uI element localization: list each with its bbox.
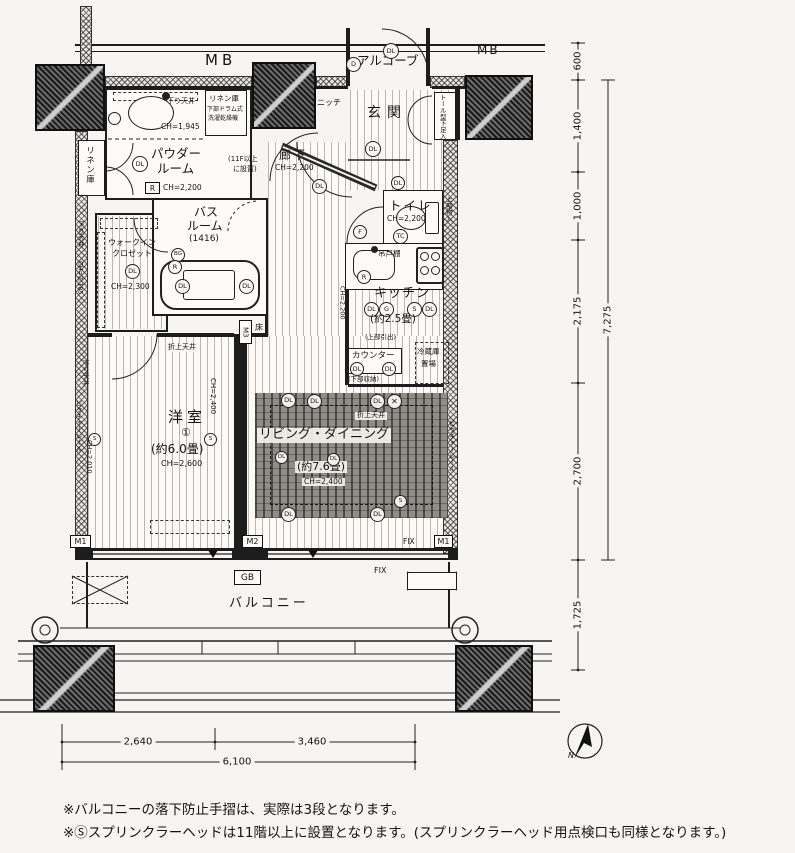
r-symbol-kitchen: R <box>357 270 371 284</box>
gb-box: GB <box>234 570 261 585</box>
fridge-label-1: 冷蔵庫 <box>417 348 440 356</box>
dim-1000: 1,000 <box>573 190 584 223</box>
m3-door-box: M3 <box>239 320 252 344</box>
western-door-arc <box>112 334 157 379</box>
wic-shelf-dashed <box>97 232 105 328</box>
downlight-symbol-wic: DL <box>125 264 140 279</box>
dim-6100-total: 6,100 <box>220 757 255 768</box>
stove-burner-1 <box>420 252 429 261</box>
downlight-symbol-ld-1: DL <box>281 393 296 408</box>
dim-3460: 3,460 <box>295 737 330 748</box>
linen-left-label: リネン庫 <box>84 146 94 194</box>
wic-label-2: クロゼット <box>112 250 152 259</box>
dim-2640: 2,640 <box>121 737 156 748</box>
toilet-ch-label: CH=2,200 <box>387 215 426 223</box>
stove-burner-2 <box>431 252 440 261</box>
sliding-window-mark-1 <box>208 550 218 558</box>
rail-post-right <box>452 617 478 643</box>
sprinkler-note-box-2: に設置) <box>233 166 257 174</box>
bath-door-arc <box>228 201 258 231</box>
dim-1400: 1,400 <box>573 110 584 143</box>
western-room-label: 洋室 <box>168 409 206 426</box>
powder-drop-ceiling-label: 下り天井 <box>167 98 197 106</box>
window-m2-box: M2 <box>242 535 263 548</box>
compass-north-label: N <box>568 752 574 761</box>
powder-fixture <box>108 112 121 125</box>
niche-label: ニッチ <box>317 99 341 108</box>
delivery-box-symbol: D <box>346 57 361 72</box>
pillar-top-right <box>465 75 533 140</box>
compass-needle <box>574 724 592 759</box>
rail-post-left <box>32 617 58 643</box>
linen-top-label-1: リネン庫 <box>209 95 239 103</box>
downlight-symbol-counter-2: DL <box>382 362 396 376</box>
lower-storage-label: (下部収納) <box>348 376 379 383</box>
dim-2700: 2,700 <box>573 455 584 488</box>
downlight-symbol-bath-1: DL <box>175 279 190 294</box>
dim-600: 600 <box>573 49 584 72</box>
note-balcony-rail: ※バルコニーの落下防止手摺は、実際は3段となります。 <box>63 798 405 818</box>
downlight-symbol-powder: DL <box>132 156 148 172</box>
balcony-label: バルコニー <box>229 597 309 612</box>
fridge-label-2: 置場 <box>421 360 436 368</box>
bath-label-2: ルーム <box>187 220 223 233</box>
balcony-box <box>407 572 457 590</box>
linen-top-label-2: 下部ドラム式 <box>207 107 243 114</box>
note-sprinkler: ※Ⓢスプリンクラーヘッドは11階以上に設置となります。(スプリンクラーヘッド用点… <box>63 821 726 841</box>
rail-post-left-inner <box>40 625 50 635</box>
downlight-symbol-ld-6: DL <box>275 451 288 464</box>
pillar-top-left <box>35 64 105 131</box>
downlight-symbol-ld-2: DL <box>307 394 322 409</box>
bath-size-label: (1416) <box>189 234 219 244</box>
picture-rail-label-right: ピクチャーレール <box>447 420 454 492</box>
picture-rail-label-left: ピクチャーレール <box>74 400 81 472</box>
rail-post-right-inner <box>460 625 470 635</box>
downlight-symbol-alcove: DL <box>383 43 399 59</box>
genkan-label: 玄関 <box>367 106 407 122</box>
western-coffered-label: 折上天井 <box>166 344 198 352</box>
wic-drop-ceiling-label: 下り天井 <box>76 221 83 259</box>
window-m1-left-box: M1 <box>70 535 91 548</box>
plan-linework <box>0 0 795 853</box>
floor-plan-sheet: MB MB アルコーブ D DL 玄関 ニッチ トール型下足入 DL 廊下 CH… <box>0 0 795 853</box>
counter-label: カウンター <box>352 352 395 362</box>
sprinkler-symbol-western-2: S <box>204 433 217 446</box>
r-box-powder: R <box>145 182 160 194</box>
window-fix-label: FIX <box>403 538 415 546</box>
western-drop-ceiling-label: 下り天井 <box>81 360 88 398</box>
bath-label-1: バス <box>194 206 218 219</box>
ld-label: リビング・ダイニング <box>257 428 391 443</box>
x-symbol-ld: ✕ <box>387 394 402 409</box>
downlight-symbol-ld-5: DL <box>370 507 385 522</box>
shoe-door-arc-2 <box>408 120 432 144</box>
wic-ch-label: CH=2,300 <box>111 283 150 291</box>
kitchen-size-label: (約2.5畳) <box>370 314 416 326</box>
downlight-symbol-hall: DL <box>312 179 327 194</box>
downlight-symbol-ld-7: DL <box>327 453 340 466</box>
shoe-cabinet-label: トール型下足入 <box>438 94 445 144</box>
fan-symbol-hall: F <box>353 225 367 239</box>
shoe-door-arc-1 <box>408 96 432 120</box>
wic-hanger-dashed <box>100 218 158 229</box>
powder-room-label-2: ルーム <box>157 162 194 176</box>
stove-burner-4 <box>431 266 440 275</box>
western-closet-dashed <box>150 520 230 534</box>
kitchen-label: キッチン <box>374 287 430 302</box>
stove-burner-3 <box>420 266 429 275</box>
linen-top-label-3: 洗濯乾燥機 <box>208 116 238 123</box>
dim-1725: 1,725 <box>573 599 584 632</box>
toilet-door-arc <box>347 207 383 243</box>
hanging-cupboard-label: 吊戸棚 <box>378 250 401 258</box>
pillar-top-mid <box>252 62 316 129</box>
powder-drop-ch-label: CH=1,945 <box>161 123 200 131</box>
downlight-symbol-ld-4: DL <box>281 507 296 522</box>
upper-drawer-label: (上部引出) <box>365 334 396 341</box>
sliding-window-mark-2 <box>308 550 318 558</box>
toilet-label: トイレ <box>389 199 433 213</box>
downlight-symbol-bath-2: DL <box>239 279 254 294</box>
kitchen-ch-label: CH=2,200 <box>338 286 345 330</box>
toilet-counter-symbol: TC <box>393 229 408 244</box>
toilet-upper-storage-label: 上部物入 <box>444 196 451 242</box>
window-m1-right-box: M1 <box>434 535 453 548</box>
bathtub-inner <box>183 270 235 300</box>
downlight-symbol-toilet: DL <box>391 176 405 190</box>
mb-label-right: MB <box>477 44 500 57</box>
sprinkler-note-box-1: (11F以上 <box>228 156 258 164</box>
dim-7275-total: 7,275 <box>603 304 614 337</box>
powder-room-label-1: パウダー <box>151 147 201 161</box>
pillar-bottom-left <box>33 645 115 712</box>
western-size-label: (約6.0畳) <box>151 443 203 456</box>
hall-ch-label: CH=2,200 <box>275 164 314 172</box>
ld-ch-label: CH=2,400 <box>302 478 345 486</box>
floor-label: 床 <box>255 324 263 333</box>
western-ch-label: CH=2,600 <box>161 460 202 469</box>
wic-label-1: ウォークイン <box>108 239 156 248</box>
r-symbol-bath: R <box>168 260 182 274</box>
sprinkler-symbol-ld: S <box>394 495 407 508</box>
ld-coffered-label: 折上天井 <box>355 412 387 420</box>
dim-2175: 2,175 <box>573 295 584 328</box>
downlight-symbol-genkan: DL <box>365 141 381 157</box>
balcony-hatch-box-dashed <box>72 576 128 604</box>
western-room-number: ① <box>181 427 191 439</box>
picture-rail-ch-left: CH=2,010 <box>85 440 92 482</box>
kitchen-faucet <box>371 246 378 253</box>
powder-ch-label: CH=2,200 <box>163 184 202 192</box>
balcony-fix-label: FIX <box>374 567 386 576</box>
ld-size-label: (約7.6畳) <box>295 461 347 473</box>
wic-drop-ch-label: CH=2,185 <box>76 261 83 303</box>
downlight-symbol-kitchen-2: DL <box>422 302 437 317</box>
pillar-bottom-right <box>455 645 533 712</box>
downlight-symbol-ld-3: DL <box>370 394 385 409</box>
downlight-symbol-counter-1: DL <box>350 362 364 376</box>
western-coffer-ch-label: CH=2,400 <box>208 378 216 426</box>
mb-label-left: MB <box>205 52 236 69</box>
hall-label: 廊下 <box>279 149 307 162</box>
